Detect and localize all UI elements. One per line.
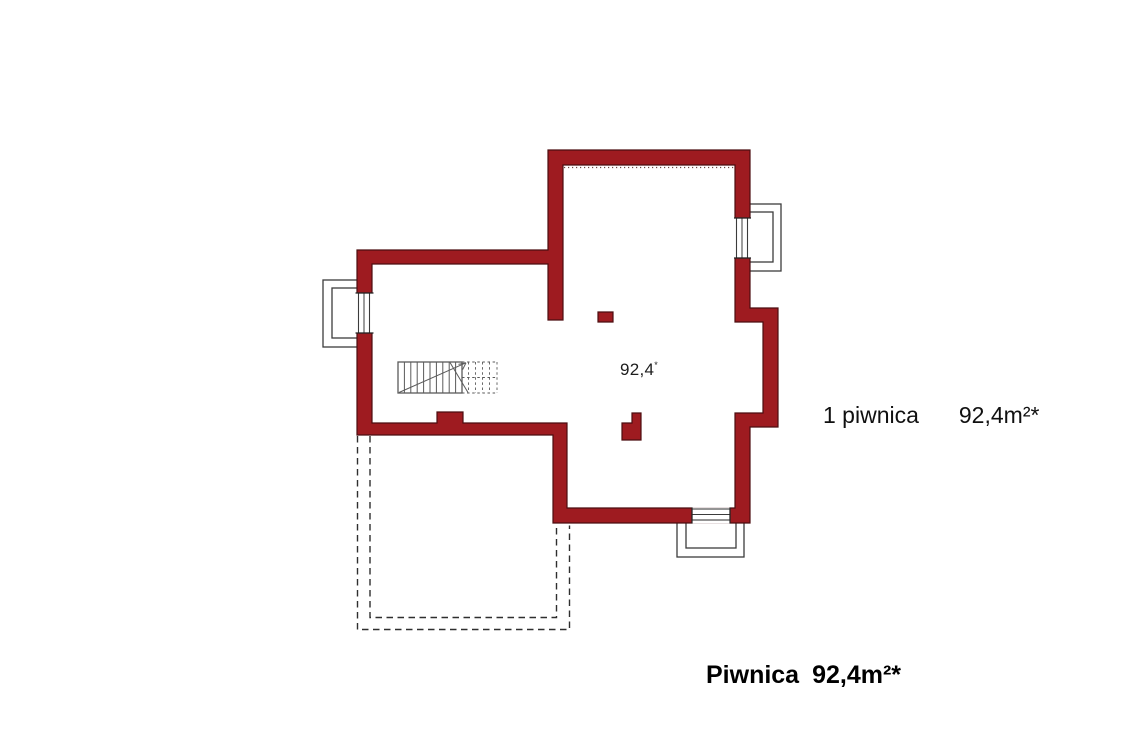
plan-title-area: 92,4m²* <box>812 661 901 690</box>
floor-plan-canvas: 92,4* 1 piwnica 92,4m²* Piwnica 92,4m²* <box>0 0 1140 732</box>
light-well-bottom <box>677 522 744 557</box>
window-left <box>356 293 374 334</box>
window-right <box>734 218 751 259</box>
legend-room-area: 92,4m²* <box>959 402 1040 429</box>
light-well-left <box>323 280 360 347</box>
stairs-dashed-section <box>462 362 497 393</box>
light-well-right <box>746 204 781 271</box>
plan-title-name: Piwnica <box>706 661 799 690</box>
room-area-footnote-mark: * <box>654 360 658 370</box>
floor-plan-drawing <box>0 0 1140 732</box>
plan-title: Piwnica 92,4m²* <box>706 661 901 690</box>
chimney-flue-block <box>622 413 641 440</box>
legend-room-entry: 1 piwnica <box>823 402 919 429</box>
stairs <box>398 362 497 393</box>
room-legend: 1 piwnica 92,4m²* <box>823 402 1039 429</box>
terrace-dashed-outline <box>358 436 570 630</box>
window-bottom <box>692 508 731 524</box>
room-area-value: 92,4 <box>620 360 654 379</box>
chimney-block <box>598 312 613 322</box>
walls <box>357 150 778 523</box>
room-area-label: 92,4* <box>620 360 658 380</box>
